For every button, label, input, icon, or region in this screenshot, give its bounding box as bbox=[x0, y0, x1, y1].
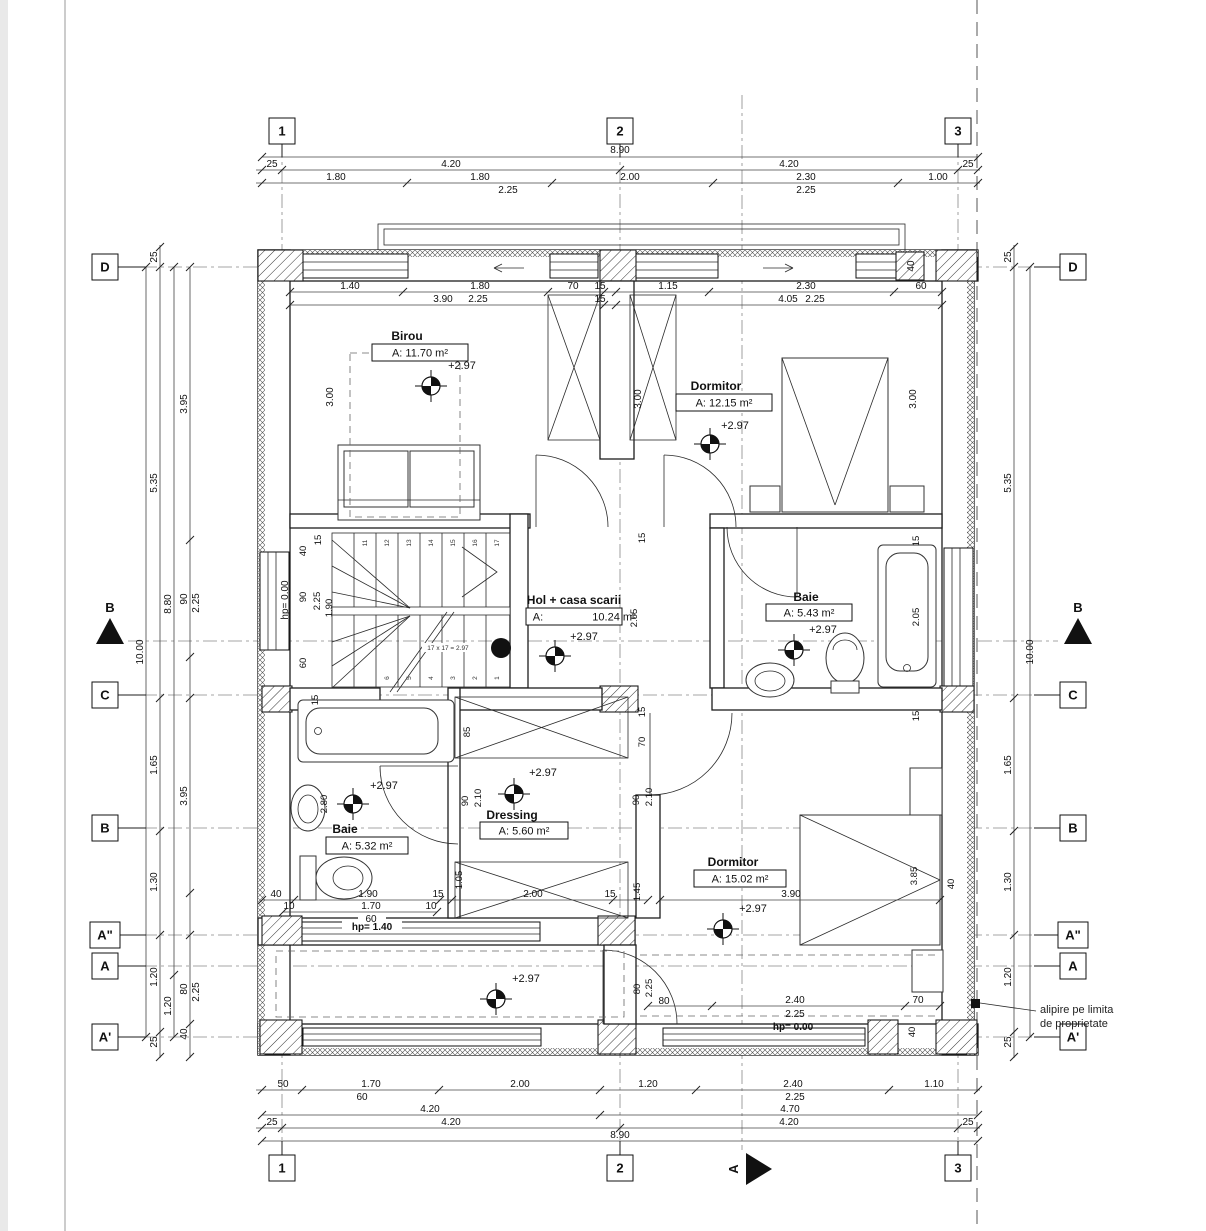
svg-text:15: 15 bbox=[637, 533, 648, 544]
svg-text:60: 60 bbox=[356, 1092, 368, 1103]
dim-chains-bottom: 50 1.70 2.00 1.20 2.40 1.10 60 2.25 4.20… bbox=[256, 1079, 982, 1145]
level-marker-icon bbox=[778, 634, 810, 666]
svg-text:2: 2 bbox=[616, 1161, 623, 1176]
level-balcon: +2.97 bbox=[512, 973, 540, 985]
room-dressing-label: Dressing A: 5.60 m² +2.97 bbox=[480, 767, 568, 839]
svg-text:B: B bbox=[1068, 821, 1077, 836]
svg-text:85: 85 bbox=[462, 727, 473, 738]
svg-text:2: 2 bbox=[616, 124, 623, 139]
svg-text:3.00: 3.00 bbox=[325, 387, 336, 407]
svg-text:10: 10 bbox=[283, 901, 295, 912]
svg-text:1.65: 1.65 bbox=[149, 755, 160, 775]
level-birou: +2.97 bbox=[448, 360, 476, 372]
svg-text:15: 15 bbox=[911, 711, 922, 722]
baie1-toilet bbox=[826, 633, 864, 693]
svg-text:2.25: 2.25 bbox=[644, 979, 655, 998]
dim-chains-top: 8.90 25 4.20 4.20 25 1.80 1.80 2.00 2.30… bbox=[256, 145, 982, 196]
dim-chains-right: 25 5.35 1.65 1.30 1.20 25 10.00 bbox=[1003, 243, 1036, 1061]
level-dressing: +2.97 bbox=[529, 767, 557, 779]
level-marker-icon bbox=[498, 778, 530, 810]
svg-text:D: D bbox=[1068, 260, 1077, 275]
svg-text:5.35: 5.35 bbox=[1003, 473, 1014, 493]
svg-text:1.80: 1.80 bbox=[470, 172, 490, 183]
svg-text:A: 11.70 m²: A: 11.70 m² bbox=[392, 348, 448, 360]
level-marker-icon bbox=[337, 788, 369, 820]
window-bottom-1 bbox=[303, 1028, 541, 1046]
svg-text:2.25: 2.25 bbox=[498, 185, 518, 196]
grid-bubble-row-c-left: C bbox=[92, 682, 146, 708]
svg-text:15: 15 bbox=[310, 695, 321, 706]
svg-text:15: 15 bbox=[637, 707, 648, 718]
floor-plan-drawing: 17 x 17 = 2.97 11 12 13 14 15 16 17 6 5 … bbox=[0, 0, 1206, 1231]
grid-bubble-row-b-left: B bbox=[92, 815, 146, 841]
grid-bubble-row-a2-right: A" bbox=[1034, 922, 1088, 948]
level-dormitor2: +2.97 bbox=[739, 903, 767, 915]
svg-text:40: 40 bbox=[907, 1027, 918, 1038]
svg-text:D: D bbox=[100, 260, 109, 275]
level-marker-icon bbox=[415, 370, 447, 402]
svg-text:10: 10 bbox=[425, 901, 437, 912]
svg-text:90: 90 bbox=[460, 796, 471, 807]
svg-text:2.25: 2.25 bbox=[796, 185, 816, 196]
svg-text:70: 70 bbox=[637, 737, 648, 748]
svg-text:1.45: 1.45 bbox=[632, 883, 643, 902]
room-dormitor1-label: Dormitor A: 12.15 m² +2.97 bbox=[676, 379, 772, 460]
svg-text:1.10: 1.10 bbox=[924, 1079, 944, 1090]
dormitor1-bed bbox=[750, 358, 924, 512]
svg-text:A: 5.43 m²: A: 5.43 m² bbox=[784, 608, 835, 620]
window-top-4 bbox=[856, 254, 896, 278]
svg-text:C: C bbox=[100, 688, 110, 703]
svg-text:14: 14 bbox=[428, 539, 435, 547]
svg-text:4.20: 4.20 bbox=[441, 1117, 461, 1128]
svg-text:25: 25 bbox=[266, 159, 278, 170]
svg-text:1: 1 bbox=[278, 124, 285, 139]
svg-text:2.25: 2.25 bbox=[312, 592, 323, 611]
note-line2: de proprietate bbox=[1040, 1018, 1108, 1030]
svg-text:2.40: 2.40 bbox=[783, 1079, 803, 1090]
svg-text:3.90: 3.90 bbox=[781, 889, 801, 900]
svg-text:15: 15 bbox=[604, 889, 616, 900]
baie2-bathtub bbox=[298, 700, 454, 762]
svg-text:1.70: 1.70 bbox=[361, 1079, 381, 1090]
svg-text:25: 25 bbox=[266, 1117, 278, 1128]
svg-text:70: 70 bbox=[567, 281, 579, 292]
svg-text:Hol + casa scarii: Hol + casa scarii bbox=[527, 593, 621, 607]
level-marker-icon bbox=[480, 983, 512, 1015]
svg-text:80: 80 bbox=[658, 996, 670, 1007]
stair-treads-top bbox=[354, 533, 486, 607]
svg-text:Baie: Baie bbox=[332, 822, 358, 836]
svg-text:3.95: 3.95 bbox=[179, 786, 190, 806]
svg-text:2.25: 2.25 bbox=[785, 1009, 805, 1020]
svg-text:A: 15.02 m²: A: 15.02 m² bbox=[712, 874, 769, 886]
svg-text:25: 25 bbox=[1003, 1036, 1014, 1048]
level-marker-icon bbox=[707, 913, 739, 945]
svg-text:2.25: 2.25 bbox=[191, 982, 202, 1002]
svg-text:1.30: 1.30 bbox=[1003, 872, 1014, 892]
svg-text:1.20: 1.20 bbox=[1003, 967, 1014, 987]
svg-text:4: 4 bbox=[428, 676, 435, 680]
svg-text:A: A bbox=[1068, 959, 1078, 974]
svg-text:A: A bbox=[100, 959, 110, 974]
baie1-bathtub bbox=[878, 545, 936, 687]
svg-text:4.20: 4.20 bbox=[420, 1104, 440, 1115]
door-dormitor2 bbox=[650, 713, 732, 795]
svg-text:40: 40 bbox=[946, 879, 957, 890]
svg-text:12: 12 bbox=[384, 539, 391, 547]
level-baie1: +2.97 bbox=[809, 624, 837, 636]
shaft-box-1 bbox=[548, 295, 600, 440]
svg-text:60: 60 bbox=[365, 914, 377, 925]
grid-bubble-row-d-left: D bbox=[92, 254, 146, 280]
svg-text:2.25: 2.25 bbox=[785, 1092, 805, 1103]
svg-text:1.65: 1.65 bbox=[1003, 755, 1014, 775]
note-line1: alipire pe limita bbox=[1040, 1004, 1114, 1016]
svg-text:2.30: 2.30 bbox=[796, 172, 816, 183]
svg-text:15: 15 bbox=[450, 539, 457, 547]
svg-text:4.20: 4.20 bbox=[779, 1117, 799, 1128]
hp-bottom: hp= 0.00 bbox=[773, 1022, 814, 1033]
svg-text:40: 40 bbox=[270, 889, 282, 900]
grid-bubble-col3-bottom: 3 bbox=[945, 1141, 971, 1181]
svg-text:3: 3 bbox=[954, 1161, 961, 1176]
roof-overhang bbox=[378, 224, 905, 250]
svg-text:B: B bbox=[100, 821, 109, 836]
svg-text:2.80: 2.80 bbox=[319, 795, 330, 814]
svg-text:B: B bbox=[105, 600, 114, 615]
svg-text:15: 15 bbox=[432, 889, 444, 900]
dim-chains-left: 10.00 25 5.35 1.65 1.30 1.20 25 8.80 1.2… bbox=[135, 243, 202, 1061]
svg-text:60: 60 bbox=[915, 281, 927, 292]
svg-text:4.05: 4.05 bbox=[778, 294, 798, 305]
svg-text:3.90: 3.90 bbox=[433, 294, 453, 305]
svg-text:1.20: 1.20 bbox=[638, 1079, 658, 1090]
svg-text:A: 12.15 m²: A: 12.15 m² bbox=[696, 398, 753, 410]
svg-text:3.00: 3.00 bbox=[633, 389, 644, 409]
door-baie1 bbox=[727, 527, 797, 597]
svg-text:90: 90 bbox=[631, 795, 642, 806]
svg-text:2.00: 2.00 bbox=[510, 1079, 530, 1090]
grid-bubble-col2-bottom: 2 bbox=[607, 1141, 633, 1181]
grid-bubble-row-a1-left: A' bbox=[92, 1024, 146, 1050]
birou-sofa bbox=[338, 445, 480, 520]
door-baie2 bbox=[380, 766, 458, 844]
svg-text:A:: A: bbox=[533, 612, 543, 624]
svg-text:2.05: 2.05 bbox=[911, 608, 922, 627]
svg-text:25: 25 bbox=[962, 1117, 974, 1128]
svg-text:A: 5.32 m²: A: 5.32 m² bbox=[342, 841, 393, 853]
page-edge-strip bbox=[0, 0, 8, 1231]
svg-text:1.40: 1.40 bbox=[340, 281, 360, 292]
window-parapet-140 bbox=[300, 922, 540, 941]
svg-text:2.25: 2.25 bbox=[468, 294, 488, 305]
svg-text:B: B bbox=[1073, 600, 1082, 615]
svg-text:5.35: 5.35 bbox=[149, 473, 160, 493]
level-dormitor1: +2.97 bbox=[721, 420, 749, 432]
svg-text:5: 5 bbox=[406, 676, 413, 680]
svg-text:4.20: 4.20 bbox=[779, 159, 799, 170]
svg-text:25: 25 bbox=[149, 251, 160, 263]
svg-text:60: 60 bbox=[298, 658, 309, 669]
svg-text:2.00: 2.00 bbox=[620, 172, 640, 183]
grid-bubble-row-c-right: C bbox=[1034, 682, 1086, 708]
section-b-right: B bbox=[1064, 600, 1092, 644]
svg-text:6: 6 bbox=[384, 676, 391, 680]
svg-text:3.85: 3.85 bbox=[909, 867, 920, 886]
svg-text:Dormitor: Dormitor bbox=[708, 855, 759, 869]
svg-text:A": A" bbox=[1065, 928, 1081, 943]
svg-text:1.00: 1.00 bbox=[928, 172, 948, 183]
level-marker-icon bbox=[539, 640, 571, 672]
svg-text:8.90: 8.90 bbox=[610, 1130, 630, 1141]
svg-text:15: 15 bbox=[313, 535, 324, 546]
svg-text:1: 1 bbox=[494, 676, 501, 680]
section-b-left: B bbox=[96, 600, 124, 644]
svg-text:C: C bbox=[1068, 688, 1078, 703]
svg-text:3: 3 bbox=[450, 676, 457, 680]
svg-text:3.00: 3.00 bbox=[908, 389, 919, 409]
section-a-bottom: A bbox=[726, 1153, 772, 1185]
grid-bubble-col1-top: 1 bbox=[269, 118, 295, 157]
svg-text:8.80: 8.80 bbox=[163, 594, 174, 614]
balcony-level: +2.97 bbox=[480, 973, 540, 1015]
svg-text:2.10: 2.10 bbox=[473, 789, 484, 808]
svg-text:1.90: 1.90 bbox=[358, 889, 378, 900]
grid-bubble-row-a2-left: A" bbox=[90, 922, 146, 948]
svg-text:4.20: 4.20 bbox=[441, 159, 461, 170]
svg-text:1.20: 1.20 bbox=[163, 996, 174, 1016]
svg-text:2.30: 2.30 bbox=[796, 281, 816, 292]
shaft-box-2 bbox=[630, 295, 676, 440]
svg-text:16: 16 bbox=[472, 539, 479, 547]
svg-text:A: A bbox=[726, 1164, 741, 1174]
floor-plan-page: 17 x 17 = 2.97 11 12 13 14 15 16 17 6 5 … bbox=[0, 0, 1206, 1231]
svg-text:A': A' bbox=[99, 1030, 111, 1045]
window-top-3 bbox=[636, 254, 718, 278]
svg-text:13: 13 bbox=[406, 539, 413, 547]
hp-left: hp= 0.00 bbox=[280, 580, 291, 620]
window-top-2 bbox=[550, 254, 598, 278]
stair-up-arrow bbox=[462, 547, 497, 597]
svg-text:4.70: 4.70 bbox=[780, 1104, 800, 1115]
svg-text:80: 80 bbox=[179, 983, 190, 995]
svg-text:1.30: 1.30 bbox=[149, 872, 160, 892]
svg-text:Baie: Baie bbox=[793, 590, 819, 604]
window-right bbox=[944, 548, 973, 688]
svg-text:40: 40 bbox=[298, 546, 309, 557]
svg-text:2.40: 2.40 bbox=[785, 995, 805, 1006]
svg-text:A": A" bbox=[97, 928, 113, 943]
stair-column bbox=[491, 638, 511, 658]
svg-text:40: 40 bbox=[906, 260, 917, 272]
svg-text:80: 80 bbox=[632, 984, 643, 995]
svg-text:3.95: 3.95 bbox=[179, 394, 190, 414]
svg-text:1.90: 1.90 bbox=[324, 599, 335, 618]
window-bottom-2 bbox=[663, 1028, 865, 1046]
grid-bubble-row-d-right: D bbox=[1034, 254, 1086, 280]
door-birou bbox=[536, 455, 608, 527]
svg-text:50: 50 bbox=[277, 1079, 289, 1090]
grid-bubble-col3-top: 3 bbox=[945, 118, 971, 157]
svg-text:25: 25 bbox=[1003, 251, 1014, 263]
svg-text:40: 40 bbox=[179, 1028, 190, 1040]
svg-text:25: 25 bbox=[962, 159, 974, 170]
svg-text:2.25: 2.25 bbox=[191, 593, 202, 613]
svg-text:2.25: 2.25 bbox=[805, 294, 825, 305]
svg-text:3: 3 bbox=[954, 124, 961, 139]
baie1-sink bbox=[746, 663, 794, 697]
svg-text:15: 15 bbox=[594, 294, 606, 305]
level-hol: +2.97 bbox=[570, 631, 598, 643]
svg-text:1.20: 1.20 bbox=[149, 967, 160, 987]
svg-text:10.00: 10.00 bbox=[135, 639, 146, 664]
svg-text:70: 70 bbox=[912, 995, 924, 1006]
level-marker-icon bbox=[694, 428, 726, 460]
svg-text:1.80: 1.80 bbox=[326, 172, 346, 183]
level-baie2: +2.97 bbox=[370, 780, 398, 792]
svg-text:11: 11 bbox=[362, 539, 369, 546]
stair-formula: 17 x 17 = 2.97 bbox=[427, 645, 469, 652]
svg-text:Dressing: Dressing bbox=[486, 808, 537, 822]
svg-text:2: 2 bbox=[472, 676, 479, 680]
grid-bubble-row-a-right: A bbox=[1034, 953, 1086, 979]
svg-text:90: 90 bbox=[179, 593, 190, 605]
svg-text:Dormitor: Dormitor bbox=[691, 379, 742, 393]
svg-text:25: 25 bbox=[149, 1036, 160, 1048]
svg-text:A: 5.60 m²: A: 5.60 m² bbox=[499, 826, 550, 838]
svg-text:Birou: Birou bbox=[391, 329, 422, 343]
svg-text:A': A' bbox=[1067, 1030, 1079, 1045]
grid-bubble-col1-bottom: 1 bbox=[269, 1141, 295, 1181]
svg-text:90: 90 bbox=[298, 592, 309, 603]
svg-text:1: 1 bbox=[278, 1161, 285, 1176]
grid-bubble-row-a-left: A bbox=[92, 953, 146, 979]
svg-text:1.15: 1.15 bbox=[658, 281, 678, 292]
property-marker bbox=[971, 999, 980, 1008]
svg-text:15: 15 bbox=[594, 281, 606, 292]
svg-text:15: 15 bbox=[911, 536, 922, 547]
svg-text:1.70: 1.70 bbox=[361, 901, 381, 912]
svg-text:2.00: 2.00 bbox=[523, 889, 543, 900]
room-hol-label: Hol + casa scarii A: 10.24 m² +2.97 bbox=[526, 593, 636, 672]
property-note: alipire pe limita de proprietate bbox=[971, 999, 1114, 1030]
svg-text:17: 17 bbox=[494, 539, 501, 547]
svg-text:1.05: 1.05 bbox=[454, 871, 465, 890]
svg-text:10.00: 10.00 bbox=[1025, 639, 1036, 664]
window-top-1 bbox=[303, 254, 408, 278]
dormitor2-bed bbox=[800, 768, 943, 992]
grid-bubble-row-b-right: B bbox=[1034, 815, 1086, 841]
svg-text:2.05: 2.05 bbox=[629, 609, 640, 628]
svg-text:1.80: 1.80 bbox=[470, 281, 490, 292]
staircase: 17 x 17 = 2.97 11 12 13 14 15 16 17 6 5 … bbox=[332, 533, 511, 692]
room-baie2-label: Baie A: 5.32 m² +2.97 bbox=[326, 780, 408, 854]
svg-text:2.10: 2.10 bbox=[644, 788, 655, 807]
